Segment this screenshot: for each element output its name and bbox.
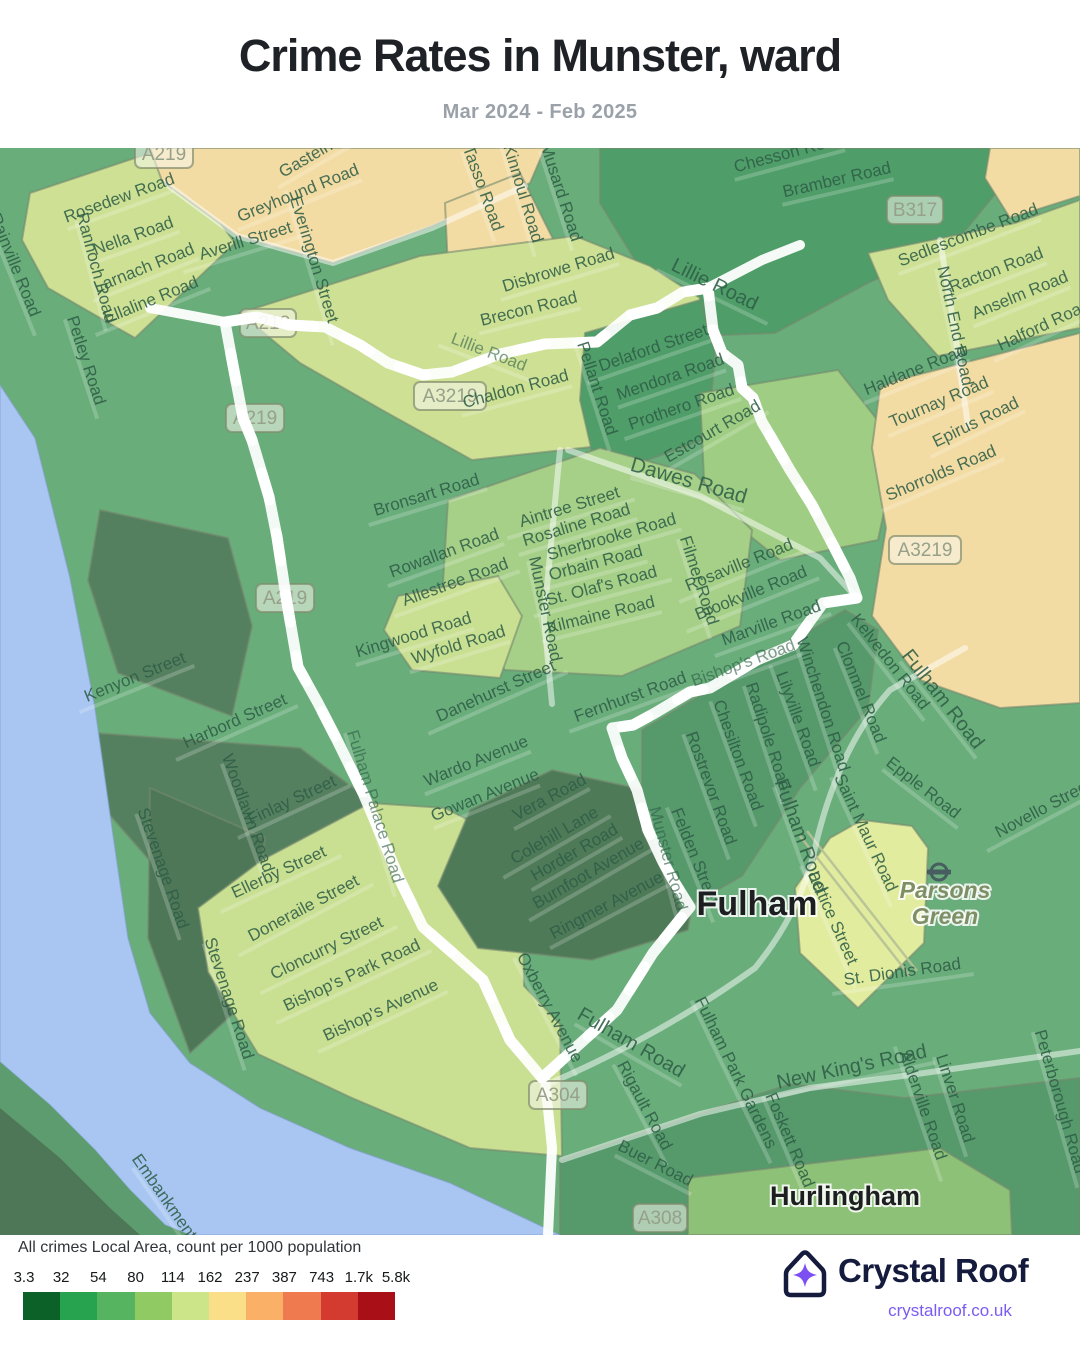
sparkle-icon bbox=[793, 1263, 817, 1287]
svg-text:B317: B317 bbox=[893, 200, 937, 221]
legend-swatch bbox=[23, 1292, 60, 1320]
legend-swatch bbox=[209, 1292, 246, 1320]
legend-swatch bbox=[135, 1292, 172, 1320]
svg-text:A3219: A3219 bbox=[898, 540, 953, 561]
road-shield: A3219 bbox=[889, 536, 961, 564]
legend-tick: 1.7k bbox=[340, 1269, 378, 1286]
legend-tick: 114 bbox=[154, 1269, 192, 1286]
page-title: Crime Rates in Munster, ward bbox=[0, 30, 1080, 82]
svg-text:A219: A219 bbox=[142, 148, 186, 165]
svg-text:A304: A304 bbox=[536, 1085, 581, 1106]
place-label: Parsons bbox=[900, 877, 991, 903]
footer: All crimes Local Area, count per 1000 po… bbox=[0, 1235, 1080, 1350]
road-shield: A308 bbox=[633, 1204, 687, 1232]
legend-tick: 5.8k bbox=[377, 1269, 415, 1286]
legend-tick: 162 bbox=[191, 1269, 229, 1286]
legend-swatch bbox=[97, 1292, 134, 1320]
legend-tick: 387 bbox=[265, 1269, 303, 1286]
legend-swatch bbox=[246, 1292, 283, 1320]
legend-swatch bbox=[283, 1292, 320, 1320]
header: Crime Rates in Munster, ward Mar 2024 - … bbox=[0, 0, 1080, 148]
legend-tick: 80 bbox=[117, 1269, 155, 1286]
road-shield: B317 bbox=[887, 196, 943, 224]
legend-swatch bbox=[321, 1292, 358, 1320]
legend-swatch bbox=[60, 1292, 97, 1320]
brand-name: Crystal Roof bbox=[838, 1252, 1028, 1290]
legend-swatch bbox=[172, 1292, 209, 1320]
legend-ticks: 3.33254801141622373877431.7k5.8k bbox=[0, 1269, 440, 1289]
road-shield: A219 bbox=[135, 148, 193, 168]
crystal-roof-logo-icon bbox=[780, 1247, 830, 1301]
legend-tick: 54 bbox=[79, 1269, 117, 1286]
brand-url-link[interactable]: crystalroof.co.uk bbox=[838, 1301, 1062, 1321]
legend-swatch bbox=[358, 1292, 395, 1320]
crime-map: A219A218A3219A219A219B317A3219A304A308 R… bbox=[0, 148, 1080, 1235]
legend-tick: 3.3 bbox=[5, 1269, 43, 1286]
page: Crime Rates in Munster, ward Mar 2024 - … bbox=[0, 0, 1080, 1350]
svg-text:A308: A308 bbox=[638, 1208, 682, 1229]
legend-title: All crimes Local Area, count per 1000 po… bbox=[18, 1239, 361, 1257]
place-label: Fulham bbox=[697, 885, 818, 923]
road-shield: A304 bbox=[529, 1081, 587, 1109]
place-label: Hurlingham bbox=[770, 1181, 920, 1211]
legend-tick: 237 bbox=[228, 1269, 266, 1286]
road-shield: A219 bbox=[226, 404, 284, 432]
page-subtitle: Mar 2024 - Feb 2025 bbox=[0, 101, 1080, 124]
legend-tick: 32 bbox=[42, 1269, 80, 1286]
place-label: Green bbox=[912, 903, 978, 929]
map-container[interactable]: A219A218A3219A219A219B317A3219A304A308 R… bbox=[0, 148, 1080, 1235]
legend-colorbar bbox=[23, 1292, 395, 1320]
legend-tick: 743 bbox=[303, 1269, 341, 1286]
